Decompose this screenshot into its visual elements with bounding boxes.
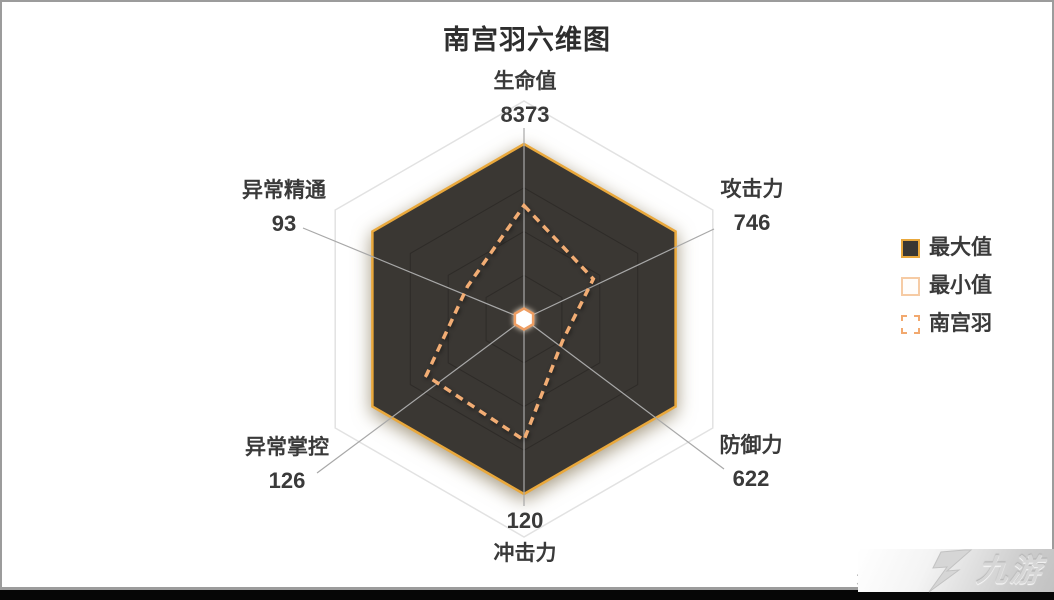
axis-name-impact: 冲击力 [494, 542, 557, 566]
legend-item-min[interactable]: 最小值 [901, 274, 992, 298]
legend-label-character: 南宫羽 [929, 312, 992, 336]
axis-name-def: 防御力 [720, 434, 783, 458]
watermark-logo-text: 九游 [975, 548, 1046, 594]
nine-game-logo-icon [925, 548, 977, 594]
axis-name-anomaly-control: 异常掌控 [245, 436, 329, 460]
axis-label-atk: 攻击力 746 [721, 178, 784, 235]
axis-label-impact: 120 冲击力 [494, 509, 557, 566]
legend-item-character[interactable]: 南宫羽 [901, 312, 992, 336]
legend-swatch-min-icon [901, 277, 920, 296]
min-value-polygon [515, 309, 533, 330]
axis-value-anomaly-control: 126 [269, 469, 306, 493]
axis-value-impact: 120 [507, 509, 544, 533]
legend-swatch-character-icon [901, 315, 920, 334]
axis-label-hp: 生命值 8373 [494, 70, 557, 127]
axis-label-anomaly-proficiency: 异常精通 93 [242, 179, 326, 236]
legend-label-max: 最大值 [929, 236, 992, 260]
axis-value-atk: 746 [734, 211, 771, 235]
axis-label-def: 防御力 622 [720, 434, 783, 491]
axis-label-anomaly-control: 异常掌控 126 [245, 436, 329, 493]
axis-name-atk: 攻击力 [721, 178, 784, 202]
axis-value-def: 622 [733, 467, 770, 491]
legend-swatch-max-icon [901, 239, 920, 258]
frame-edge-top [0, 0, 1054, 2]
legend-item-max[interactable]: 最大值 [901, 236, 992, 260]
legend: 最大值 最小值 南宫羽 [901, 236, 992, 336]
legend-label-min: 最小值 [929, 274, 992, 298]
axis-value-anomaly-proficiency: 93 [272, 212, 296, 236]
chart-title: 南宫羽六维图 [443, 18, 611, 57]
axis-value-hp: 8373 [501, 103, 550, 127]
axis-name-hp: 生命值 [494, 70, 557, 94]
axis-name-anomaly-proficiency: 异常精通 [242, 179, 326, 203]
watermark-logo: 九游 [925, 548, 1043, 594]
frame-edge-left [0, 0, 2, 600]
